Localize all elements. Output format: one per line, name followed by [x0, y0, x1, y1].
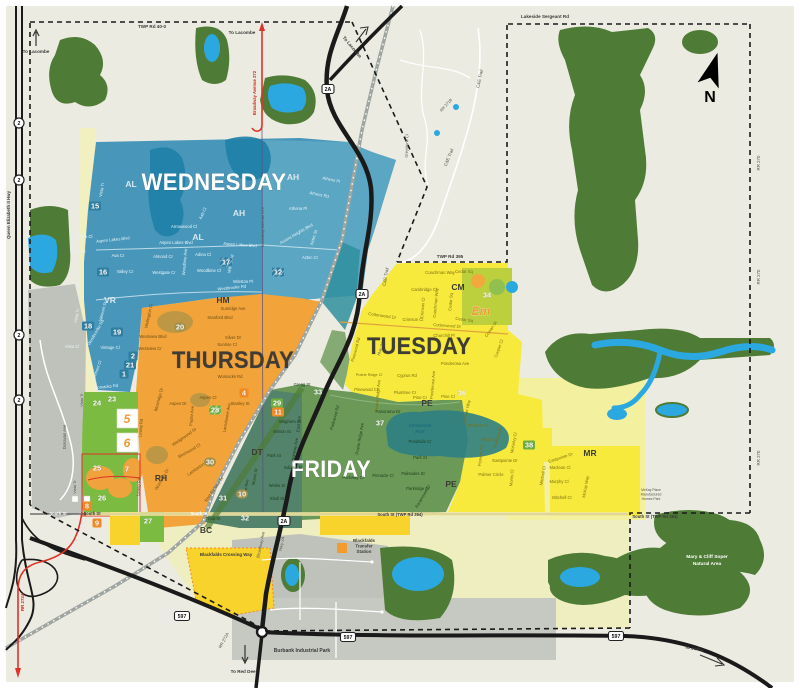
street-label: Churchill Pl [433, 333, 454, 338]
street-label: Arrowwood Cl [171, 224, 197, 229]
marker-number: 32 [241, 514, 249, 523]
road-label: Vista Tr [72, 480, 77, 494]
street-label: Anna Cl [78, 234, 93, 239]
marker-number: 24 [93, 399, 102, 408]
zone-marker-38: 38 [523, 441, 535, 450]
street-label: Palmer Circle [478, 472, 504, 477]
lake [607, 408, 627, 420]
road-label: RR 273A [20, 592, 25, 611]
street-label: Almond Cr [153, 254, 173, 259]
street-label: Cambridge Cl [411, 287, 437, 292]
street-label: Maclean Cl [550, 465, 571, 470]
shield-text: 597 [178, 614, 187, 620]
neighborhood-label-ah: AH [287, 172, 299, 182]
marker-number: 29 [273, 399, 281, 408]
street-label: Cedar Sq [455, 269, 473, 274]
marker-number: 19 [113, 328, 121, 337]
street-label: Pondside Cr [408, 439, 432, 444]
neighborhood-label-hm: HM [216, 295, 229, 305]
zone-marker-33: 33 [314, 388, 322, 397]
street-label: Aztec Cr [302, 255, 319, 260]
marker-number: 23 [108, 395, 116, 404]
road-label: Queen Elizabeth II Hwy [6, 190, 11, 239]
street-label: Pine Cl [441, 394, 455, 399]
shield-text: 2 [18, 333, 21, 339]
street-label: Pine Cr [413, 395, 428, 400]
zone-marker-20: 20 [174, 323, 186, 332]
zone-marker-37: 37 [376, 419, 384, 428]
shield-text: 2A [359, 292, 366, 298]
marker-number: 1 [122, 370, 126, 379]
road-label: RR 270 [756, 269, 761, 284]
street-label: Gregg St [294, 382, 312, 387]
street-label: Vista Cl [65, 344, 79, 349]
sports-field [108, 478, 132, 498]
roundabout [257, 627, 267, 637]
street-label: Crimson Ct [403, 317, 425, 322]
facility-building [72, 496, 78, 502]
road-label: Lakeside Sergeant Rd [521, 14, 569, 19]
neighborhood-label-dt: DT [251, 447, 263, 457]
street-label: Aspen Lakes Blvd [159, 240, 193, 245]
road-label: Broadway Avenue 272 [252, 70, 257, 115]
landmark-label-transfer-station: Blackfalds [353, 538, 376, 543]
landmark-glyph: 6 [124, 436, 131, 450]
street-label: Cyprus Rd [397, 373, 417, 378]
zone-marker-30: 30 [204, 458, 216, 467]
shield-text: 2 [18, 178, 21, 184]
zone-marker-25: 25 [93, 464, 101, 473]
road-label: Vista Tr [79, 393, 84, 407]
zone-marker-31: 31 [219, 494, 227, 503]
zone-marker-16: 16 [97, 268, 109, 277]
street-label: Aspen Dr [169, 401, 187, 406]
street-label: Palisades St [401, 471, 425, 476]
landmark-glyph: 5 [124, 412, 131, 426]
highway-shield-2: 2 [14, 175, 24, 185]
zone-marker-15: 15 [89, 202, 101, 211]
street-label: Pinnacle Cl [372, 473, 393, 478]
street-label: Pinewood Cl [354, 387, 378, 392]
landmark-label-centennial-park: Park [415, 429, 425, 434]
street-label: Athena Pl [289, 206, 307, 211]
highway-shield-597: 597 [175, 612, 190, 621]
road-label: Donavan Ave [62, 424, 67, 450]
street-label: Mitchell Cr [552, 495, 572, 500]
lake [28, 234, 57, 273]
shield-text: 2A [325, 87, 332, 93]
day-zone-label-wednesday: WEDNESDAY [142, 169, 287, 196]
street-label: Trout St [206, 516, 222, 521]
road-label: South St [190, 511, 208, 516]
road-label: Greystone Cl [404, 134, 410, 158]
shield-text: 2 [18, 398, 21, 404]
zone-marker-29: 29 [271, 399, 283, 408]
street-label: Stanley St [230, 401, 250, 406]
street-label: Sunrise Cl [217, 342, 236, 347]
highway-shield-2: 2 [14, 395, 24, 405]
street-label: Park St [267, 453, 282, 458]
landmark-label-mckay-place: Manufactured [641, 493, 662, 497]
marker-number: 11 [274, 408, 282, 417]
park-area [146, 446, 168, 464]
street-label: Westview Blvd [139, 334, 167, 339]
marker-number: 37 [376, 419, 384, 428]
street-label: Coachman Way [425, 270, 456, 275]
road-label: RR 270 [756, 450, 761, 465]
zone-marker-18: 18 [82, 322, 94, 331]
highway-shield-2A: 2A [322, 85, 334, 94]
road-label: TWP Rd 40-0 [138, 24, 166, 29]
road-label: Blackfalds Crossing Way [200, 552, 253, 557]
street-label: Vintage Cl [100, 345, 119, 350]
marker-number: 8 [85, 502, 89, 511]
shield-text: 597 [612, 634, 621, 640]
neighborhood-label-al: AL [125, 179, 136, 189]
zone-marker-4: 4 [240, 389, 249, 398]
road-label: TWP Rd 395 [437, 254, 464, 259]
zone-marker-8: 8 [83, 502, 92, 511]
zone-marker-19: 19 [111, 328, 123, 337]
marker-number: 18 [84, 322, 92, 331]
street-label: Winks St [269, 483, 286, 488]
zone-marker-23: 23 [108, 395, 116, 404]
street-label: Ponderosa Ave [441, 361, 470, 366]
zone-marker-11: 11 [272, 408, 284, 417]
day-zone-label-thursday: THURSDAY [172, 347, 294, 374]
town-map: N WEDNESDAYTHURSDAYTUESDAYFRIDAYAHAHALAL… [0, 0, 800, 688]
marker-number: 33 [314, 388, 322, 397]
street-label: Stanford Blvd [207, 315, 233, 320]
street-label: Shull St [270, 496, 285, 501]
street-label: Panorama Dr [376, 409, 402, 414]
street-label: Silver Dr [225, 335, 242, 340]
park-feature [471, 274, 485, 288]
road-end-dot [380, 610, 383, 613]
direction-label: To Lacombe [229, 30, 256, 35]
zone-marker-36: 36 [458, 389, 466, 398]
forest [682, 30, 718, 54]
direction-label: To Lacombe [23, 49, 50, 54]
marker-number: 25 [93, 464, 101, 473]
marker-number: 2 [131, 352, 135, 361]
marker-number: 36 [458, 389, 466, 398]
highway-shield-2A: 2A [278, 517, 290, 526]
north-letter: N [704, 89, 716, 106]
neighborhood-label-cm: CM [451, 282, 464, 292]
street-label: Pinetree Cl [468, 423, 489, 428]
street-label: Sunridge Ave [221, 306, 247, 311]
street-label: Adina Cl [195, 252, 211, 257]
zone-bright-yellow [110, 512, 140, 545]
road-label: South St [49, 511, 67, 516]
lake [656, 403, 688, 417]
street-label: Murphy Cl [549, 479, 568, 484]
street-label: Westgate Cr [152, 270, 176, 275]
street-label: Valley Cr [117, 269, 134, 274]
shield-text: 2A [281, 519, 288, 525]
street-label: Woodbine Cl [197, 268, 221, 273]
blackfalds-collection-schedule-map: N WEDNESDAYTHURSDAYTUESDAYFRIDAYAHAHALAL… [0, 0, 800, 688]
road-label: South St (TWP Rd 394) [377, 512, 423, 517]
neighborhood-label-bc: BC [200, 525, 212, 535]
zone-marker-17: 17 [220, 258, 232, 267]
lake [434, 130, 440, 136]
landmark-label-centennial-park: Centennial [409, 423, 432, 428]
landmark-label-mckay-place: McKay Place [641, 488, 661, 492]
neighborhood-label-pe: PE [445, 479, 457, 489]
road-label: South St (TWP Rd 394) [632, 514, 678, 519]
zone-marker-27: 27 [144, 517, 152, 526]
lake [204, 34, 220, 62]
marker-number: 10 [238, 490, 246, 499]
landmark-label-natural-area: Natural Area [693, 561, 722, 567]
marker-number: 27 [144, 517, 152, 526]
landmark-label-burbank: Burbank Industrial Park [274, 648, 331, 654]
lake [268, 83, 306, 112]
shield-text: 597 [344, 635, 353, 641]
highway-shield-597: 597 [341, 633, 356, 642]
highway-shield-2: 2 [14, 118, 24, 128]
zone-marker-12: 12 [272, 268, 284, 277]
landmark-label-transfer-station: Transfer [355, 544, 373, 549]
zone-marker-28: 28 [209, 406, 221, 415]
street-label: Wilson St [273, 429, 292, 434]
zone-marker-24: 24 [93, 399, 102, 408]
zone-marker-9: 9 [93, 519, 102, 528]
neighborhood-label-al: AL [192, 232, 203, 242]
street-label: Park St [413, 455, 428, 460]
road-label: South St [83, 511, 101, 516]
neighborhood-label-ah: AH [233, 208, 245, 218]
landmark-label-natural-area: Mary & Cliff Soper [686, 554, 728, 560]
landmark-label-mckay-place: Homes Park [642, 497, 661, 501]
marker-number: 16 [99, 268, 107, 277]
marker-number: 30 [206, 458, 214, 467]
road-label: Broadway Avenue 272 [260, 206, 265, 247]
zone-marker-7: 7 [125, 465, 129, 474]
street-label: Aspen Cl [200, 395, 217, 400]
direction-label: To Red Deer [231, 669, 258, 674]
zone-marker-26: 26 [98, 494, 106, 503]
lake [560, 567, 600, 587]
street-label: Prairie Ridge Cl [356, 373, 383, 377]
street-label: Ava Cr [112, 253, 125, 258]
marker-number: 12 [274, 268, 282, 277]
landmark-label-transfer-station: Station [357, 549, 372, 554]
zone-marker-10: 10 [236, 490, 248, 499]
marker-number: 31 [219, 494, 227, 503]
marker-number: 34 [483, 291, 492, 300]
marker-number: 7 [125, 465, 129, 474]
marker-number: 15 [91, 202, 99, 211]
street-label: Eastpointe Dr [492, 458, 518, 463]
street-label: Parkway Cl [342, 475, 363, 480]
highway-shield-597: 597 [609, 632, 624, 641]
street-label: Arlen Cl [71, 249, 86, 254]
road-end-dot [370, 560, 373, 563]
marker-number: 21 [126, 361, 134, 370]
pond [506, 281, 518, 293]
marker-number: 17 [222, 258, 230, 267]
marker-number: 38 [525, 441, 533, 450]
zone-marker-34: 34 [483, 291, 492, 300]
zone-marker-1: 1 [120, 370, 129, 379]
landmark-glyph: Em [472, 304, 491, 318]
lake [285, 564, 299, 586]
marker-number: 28 [211, 406, 219, 415]
street-label: Westview Cr [138, 346, 162, 351]
shield-text: 2 [18, 121, 21, 127]
highway-shield-2A: 2A [356, 290, 368, 299]
marker-number: 9 [95, 519, 99, 528]
transfer-station-icon [337, 543, 347, 553]
neighborhood-label-mr: MR [583, 448, 596, 458]
zone-marker-32: 32 [241, 514, 249, 523]
street-label: Womacks Rd [218, 374, 243, 379]
highway-shield-2: 2 [14, 330, 24, 340]
street-label: Indiana St [284, 465, 304, 470]
marker-number: 26 [98, 494, 106, 503]
lake [392, 557, 444, 591]
road-label: RR 270 [756, 155, 761, 170]
park-feature [489, 279, 505, 295]
zone-marker-21: 21 [124, 361, 136, 370]
lake [453, 104, 459, 110]
marker-number: 20 [176, 323, 184, 332]
zone-marker-2: 2 [129, 352, 138, 361]
